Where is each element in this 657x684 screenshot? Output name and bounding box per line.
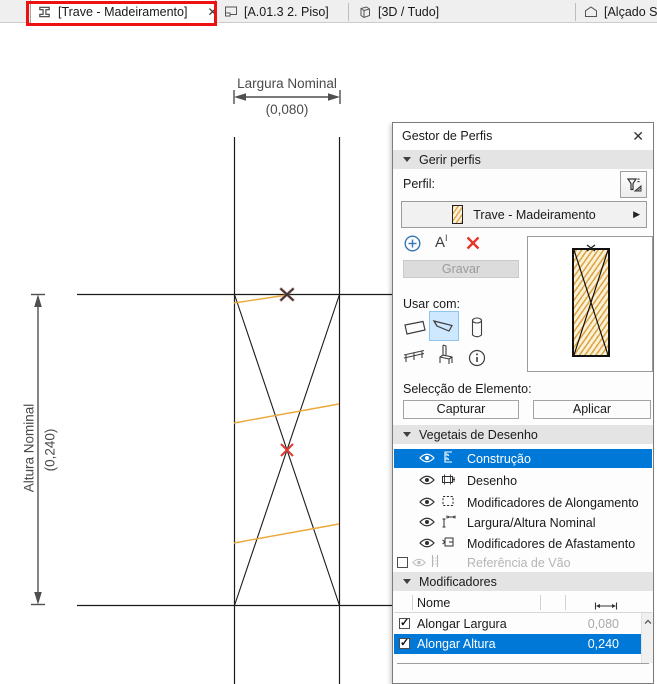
railing-icon [402,347,428,365]
modifiers-table-header: Nome [394,593,652,613]
gravar-button[interactable]: Gravar [403,260,519,278]
section-vegetais[interactable]: Vegetais de Desenho [393,425,653,444]
tab-label: [A.01.3 2. Piso] [244,5,329,19]
delete-x-icon [465,235,481,251]
seleccao-label: Selecção de Elemento: [403,382,532,396]
tab-label: [Alçado Sul [604,5,657,19]
tab-separator [575,3,576,21]
layer-label: Modificadores de Afastamento [467,537,635,551]
steel-profile-icon [37,5,52,19]
layer-row-alongamento[interactable]: Modificadores de Alongamento [394,493,652,512]
layer-row-referencia[interactable]: Referência de Vão [394,553,652,572]
profile-options-button[interactable] [620,171,647,198]
info-button[interactable] [463,345,491,371]
new-profile-button[interactable] [404,235,421,255]
stretch-marker [281,444,293,456]
panel-titlebar[interactable]: Gestor de Perfis ✕ [393,123,653,149]
capturar-button[interactable]: Capturar [403,400,519,419]
dimension-column-icon [594,599,618,613]
table-scrollbar[interactable] [641,613,653,663]
name-column-header: Nome [417,596,450,610]
checkbox[interactable] [397,557,408,568]
modifier-row-largura[interactable]: Alongar Largura 0,080 [394,614,641,634]
layer-label: Modificadores de Alongamento [467,496,639,510]
modifier-value: 0,080 [588,617,619,631]
drawing-layer-icon [441,473,456,489]
plus-circle-icon [404,235,421,252]
collapse-arrow-icon [403,157,411,162]
tab-3d[interactable]: [3D / Tudo] [352,0,570,23]
tab-label: [3D / Tudo] [378,5,439,19]
chair-icon [437,343,457,365]
section-modificadores[interactable]: Modificadores [393,572,653,591]
layer-row-afastamento[interactable]: Modificadores de Afastamento [394,534,652,553]
tab-label: [Trave - Madeiramento] [58,5,187,19]
cube-3d-icon [358,5,372,19]
width-dim-label: Largura Nominal [237,76,337,91]
beam-icon [432,317,456,335]
use-with-wall-button[interactable] [401,315,429,341]
wall-icon [403,319,427,337]
tab-trave-madeiramento[interactable]: [Trave - Madeiramento] ✕ [30,0,216,24]
modifier-name: Alongar Largura [417,617,507,631]
checkbox[interactable] [399,618,410,629]
width-dim-value: (0,080) [266,102,309,117]
tab-bar: [Trave - Madeiramento] ✕ [A.01.3 2. Piso… [0,0,657,23]
nominal-size-icon [441,514,457,532]
eye-icon[interactable] [419,474,435,488]
layer-label: Referência de Vão [467,556,571,570]
collapse-arrow-icon [403,579,411,584]
span-reference-icon [430,554,440,571]
section-label: Vegetais de Desenho [419,428,538,442]
use-with-beam-button[interactable] [429,311,459,341]
close-icon[interactable]: ✕ [632,128,644,145]
info-icon [468,349,486,367]
use-with-chair-button[interactable] [433,341,461,367]
offset-modifiers-icon [441,536,456,552]
profile-preview [527,236,653,372]
profile-name: Trave - Madeiramento [473,208,596,222]
eye-icon[interactable] [419,496,435,510]
scroll-up-icon[interactable] [642,616,654,628]
section-label: Gerir perfis [419,153,481,167]
layer-row-nominal[interactable]: Largura/Altura Nominal [394,513,652,532]
layer-row-desenho[interactable]: Desenho [394,471,652,490]
chevron-right-icon: ▶ [633,209,640,220]
perfil-label: Perfil: [403,177,435,191]
modifier-value: 0,240 [588,637,619,651]
delete-profile-button[interactable] [465,235,481,254]
eye-icon[interactable] [419,452,435,466]
layer-label: Desenho [467,474,517,488]
collapse-arrow-icon [403,432,411,437]
close-icon[interactable]: ✕ [207,5,216,19]
modifier-row-altura[interactable]: Alongar Altura 0,240 [394,634,641,654]
profile-manager-panel: Gestor de Perfis ✕ Gerir perfis Perfil: … [392,122,654,684]
rename-a: A [435,234,445,251]
eye-icon[interactable] [419,516,435,530]
eye-icon[interactable] [412,556,426,570]
rename-profile-button[interactable]: AI [435,233,448,251]
section-gerir-perfis[interactable]: Gerir perfis [393,150,653,169]
tab-piso[interactable]: [A.01.3 2. Piso] [218,0,346,23]
profile-filter-icon [625,176,643,194]
layout-sheet-icon [224,5,238,18]
tab-separator [348,3,349,21]
height-dim-value: (0,240) [43,429,58,472]
eye-icon[interactable] [419,537,435,551]
checkbox[interactable] [399,638,410,649]
column-icon [471,317,483,339]
aplicar-button[interactable]: Aplicar [533,400,651,419]
panel-title: Gestor de Perfis [402,129,632,143]
layer-label: Largura/Altura Nominal [467,516,596,530]
modifier-name: Alongar Altura [417,637,496,651]
layer-label: Construção [467,452,531,466]
house-elevation-icon [584,5,598,18]
profile-thumbnail-icon [452,205,463,224]
profile-dropdown[interactable]: Trave - Madeiramento ▶ [401,201,647,228]
divider [397,663,649,664]
height-dim-label: Altura Nominal [22,404,37,493]
tab-alcado-sul[interactable]: [Alçado Sul [578,0,657,23]
layer-row-construcao[interactable]: Construção [394,449,652,468]
section-label: Modificadores [419,575,497,589]
construction-layer-icon [441,450,455,467]
stretch-modifiers-icon [441,494,455,511]
usar-com-label: Usar com: [403,297,460,311]
use-with-column-button[interactable] [463,315,491,341]
rename-cursor: I [445,233,448,243]
use-with-railing-button[interactable] [401,343,429,369]
